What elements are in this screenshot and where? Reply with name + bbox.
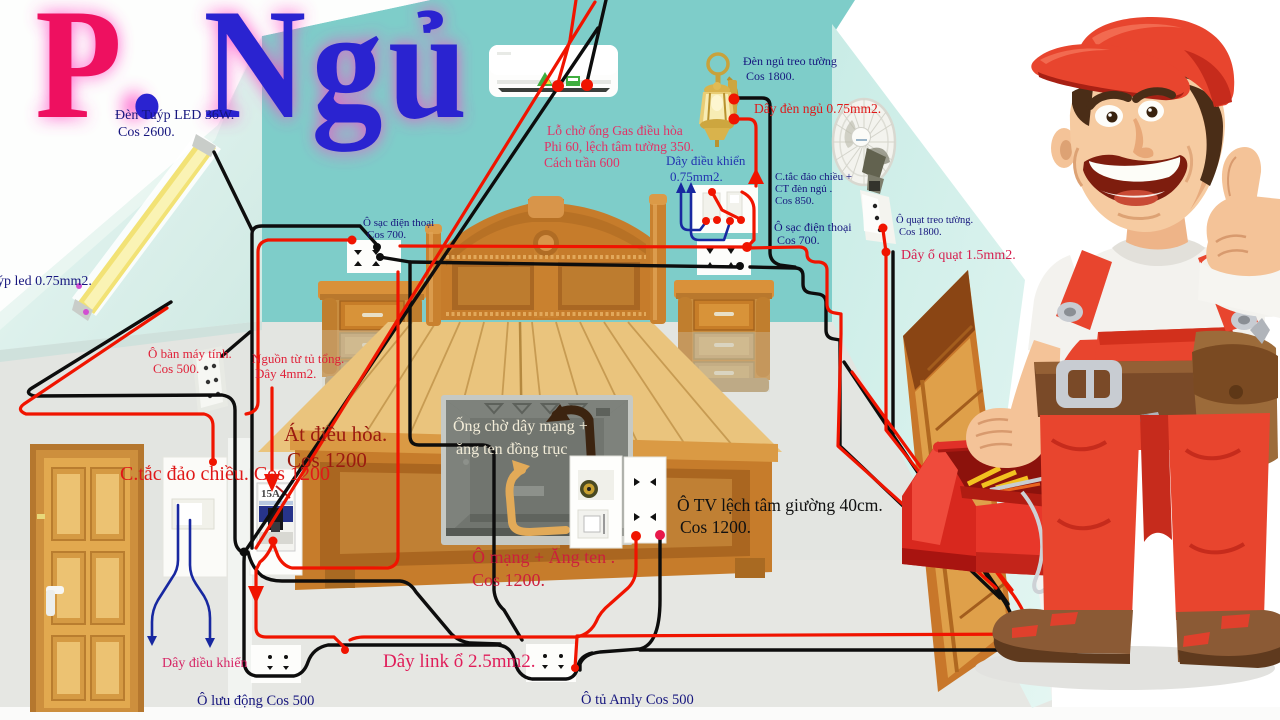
svg-text:Cos 700.: Cos 700. [777,233,820,247]
svg-text:Cách trần 600: Cách trần 600 [544,155,620,170]
svg-text:Cos 1200.: Cos 1200. [680,517,751,537]
svg-text:15A: 15A [261,488,280,500]
svg-text:CT đèn ngủ .: CT đèn ngủ . [775,183,832,195]
svg-text:Ô mạng + Ăng ten .: Ô mạng + Ăng ten . [472,546,615,567]
svg-text:Ô bàn máy tính.: Ô bàn máy tính. [148,346,232,361]
svg-text:Dây điều khiển: Dây điều khiển [666,153,746,168]
svg-text:Đèn ngủ treo tường: Đèn ngủ treo tường [743,54,837,68]
svg-text:Ống chờ dây mạng +: Ống chờ dây mạng + [453,416,588,435]
svg-text:Ô TV lệch tâm giường 40cm.: Ô TV lệch tâm giường 40cm. [677,495,883,515]
svg-text:Lỗ chờ ống Gas điều hòa: Lỗ chờ ống Gas điều hòa [547,123,683,138]
svg-text:Cos 850.: Cos 850. [775,195,814,207]
svg-text:Dây ổ quạt 1.5mm2.: Dây ổ quạt 1.5mm2. [901,248,1016,263]
svg-text:ăng ten đồng trục: ăng ten đồng trục [456,441,568,458]
svg-text:C.tắc đảo chiều +: C.tắc đảo chiều + [775,171,852,183]
svg-text:Dây link ổ 2.5mm2.: Dây link ổ 2.5mm2. [383,651,536,672]
svg-text:Ô quạt treo tường.: Ô quạt treo tường. [896,214,973,226]
svg-text:Cos 2600.: Cos 2600. [118,125,175,140]
svg-text:Ô sạc điện thoại: Ô sạc điện thoại [363,217,434,229]
svg-text:Ô tủ Amly Cos 500: Ô tủ Amly Cos 500 [581,691,694,708]
svg-text:Dây đèn ngủ 0.75mm2.: Dây đèn ngủ 0.75mm2. [754,101,881,116]
svg-text:Ngủ: Ngủ [203,0,472,152]
svg-text:Ô sạc điện thoại: Ô sạc điện thoại [774,220,852,234]
svg-text:Cos 1800.: Cos 1800. [746,69,795,83]
svg-text:Át điều hòa.: Át điều hòa. [284,422,387,446]
svg-text:Cos 500.: Cos 500. [153,361,199,376]
svg-text:Dây 4mm2.: Dây 4mm2. [255,366,316,381]
svg-text:0.75mm2.: 0.75mm2. [670,169,723,184]
svg-text:Cos 1800.: Cos 1800. [899,227,942,238]
svg-text:Nguồn từ tủ tổng.: Nguồn từ tủ tổng. [252,351,344,366]
svg-text:ýp led 0.75mm2.: ýp led 0.75mm2. [0,274,92,289]
svg-text:Cos 700.: Cos 700. [367,229,406,241]
svg-text:Phi 60, lệch tâm tường 350.: Phi 60, lệch tâm tường 350. [544,139,694,154]
svg-text:Cos 1200: Cos 1200 [287,448,367,472]
svg-text:Dây điều khiển: Dây điều khiển [162,656,248,671]
svg-text:Đèn Tuýp LED 36W.: Đèn Tuýp LED 36W. [115,108,234,123]
svg-text:Ô lưu động Cos 500: Ô lưu động Cos 500 [197,692,314,709]
svg-text:Cos 1200.: Cos 1200. [472,570,545,590]
